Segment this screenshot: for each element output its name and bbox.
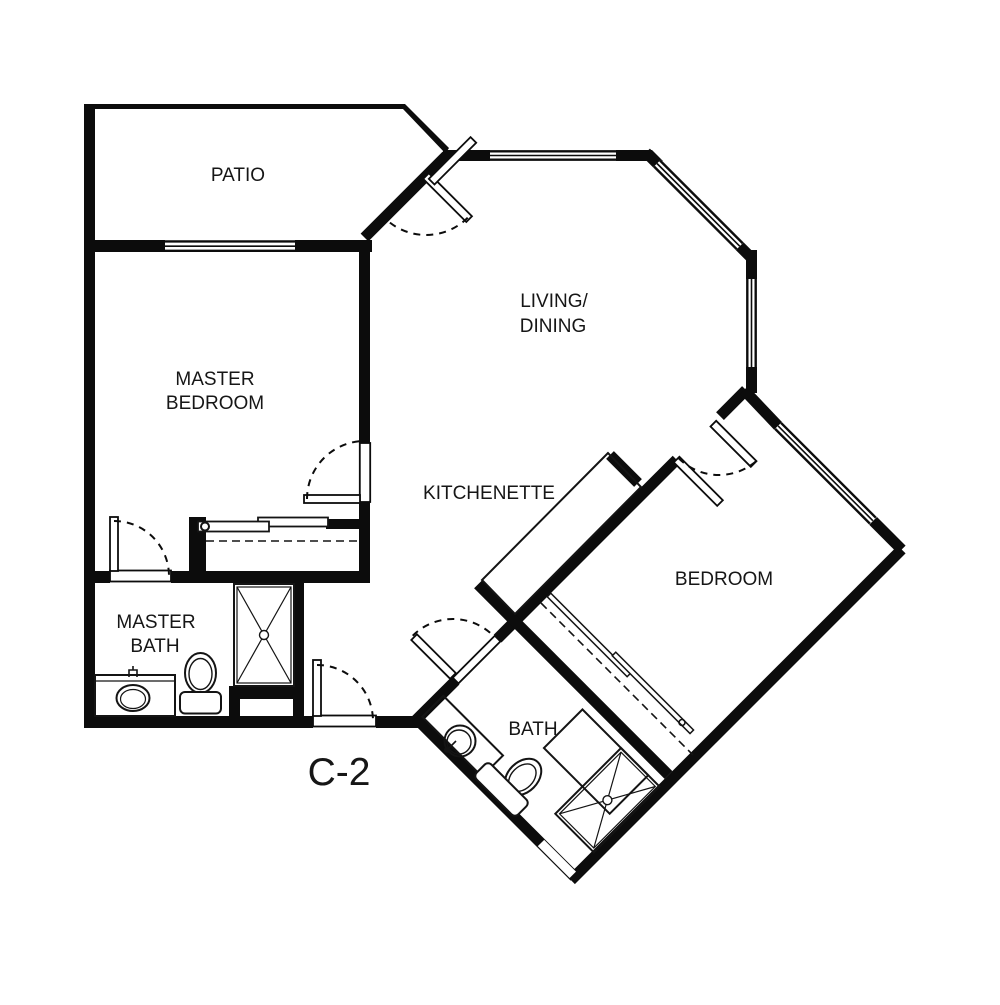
svg-text:LIVING/: LIVING/: [520, 291, 588, 312]
svg-text:KITCHENETTE: KITCHENETTE: [423, 483, 555, 504]
svg-text:MASTER: MASTER: [116, 612, 195, 633]
svg-text:BATH: BATH: [508, 719, 557, 740]
svg-text:BATH: BATH: [130, 636, 179, 657]
svg-text:MASTER: MASTER: [175, 369, 254, 390]
svg-text:PATIO: PATIO: [211, 165, 265, 186]
svg-text:C-2: C-2: [308, 751, 371, 794]
svg-text:BEDROOM: BEDROOM: [675, 569, 773, 590]
svg-text:DINING: DINING: [520, 316, 587, 337]
svg-text:BEDROOM: BEDROOM: [166, 393, 264, 414]
